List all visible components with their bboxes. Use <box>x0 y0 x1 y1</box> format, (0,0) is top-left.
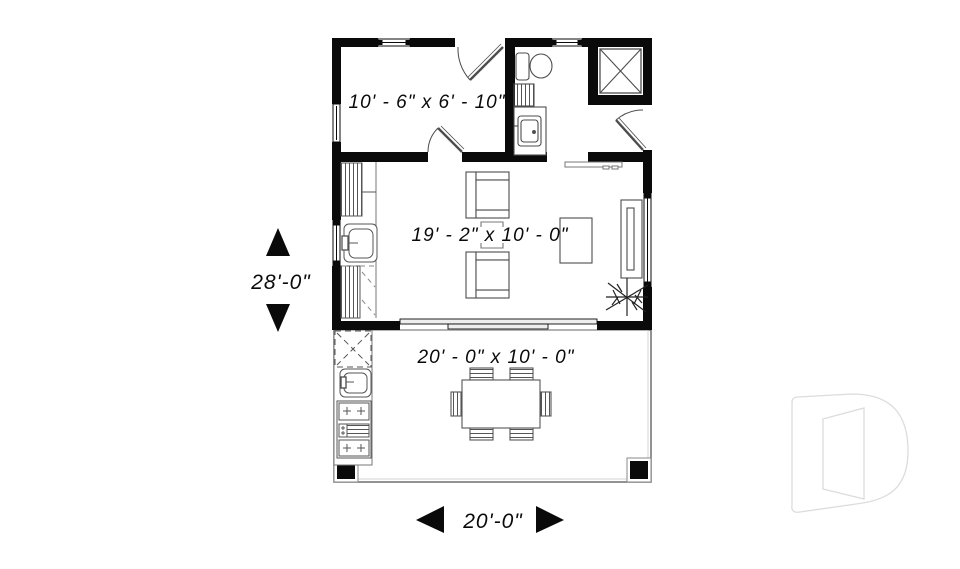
window-top-bath <box>552 39 582 46</box>
living-dimension-label: 19' - 2" x 10' - 0" <box>412 225 569 246</box>
dining-chair <box>541 392 551 416</box>
dining-chair <box>470 368 493 380</box>
shower-icon <box>600 49 641 93</box>
window-top-bedroom <box>378 39 410 46</box>
grill-icon <box>337 401 371 458</box>
floor-plan-canvas: 10' - 6" x 6' - 10" 19' - 2" x 10' - 0" … <box>0 0 960 569</box>
bath-linen <box>514 84 534 106</box>
terrace-dimension-label: 20' - 0" x 10' - 0" <box>417 347 575 368</box>
drummond-d-logo-watermark-icon <box>792 394 908 512</box>
lower-cabinet <box>341 266 360 318</box>
window-left-kitchen <box>333 220 340 266</box>
bedroom-dimension-label: 10' - 6" x 6' - 10" <box>349 92 506 113</box>
sliding-door <box>400 319 597 329</box>
window-left-bedroom <box>333 104 340 142</box>
bedroom-closet-door <box>428 126 464 152</box>
vanity-sink-icon <box>514 107 546 155</box>
bedroom-entry-door <box>458 44 503 80</box>
outdoor-sink-icon <box>340 369 371 397</box>
plant-icon <box>606 278 648 316</box>
armchair-1 <box>466 172 509 218</box>
armchair-2 <box>466 252 509 298</box>
kitchen-sink-icon <box>342 224 377 262</box>
arrow-right-icon <box>536 506 564 533</box>
tv-console <box>621 200 642 278</box>
outdoor-kitchen <box>334 330 372 465</box>
dining-chair <box>510 368 533 380</box>
dining-chair <box>470 428 493 440</box>
arrow-left-icon <box>416 506 444 533</box>
arrow-down-icon <box>266 304 290 332</box>
main-entry-door <box>616 110 646 150</box>
entry-shelf <box>565 162 622 169</box>
dining-table <box>462 380 540 428</box>
dining-table-set <box>451 368 551 440</box>
window-right-living <box>644 193 651 287</box>
overall-depth-label: 28'-0" <box>250 271 311 294</box>
dining-chair <box>510 428 533 440</box>
dishwasher <box>341 163 362 216</box>
toilet-icon <box>516 53 552 80</box>
terrace-post-right <box>627 458 651 482</box>
dining-chair <box>451 392 461 416</box>
overall-width-label: 20'-0" <box>462 510 523 533</box>
arrow-up-icon <box>266 228 290 256</box>
floor-plan-drawing: 10' - 6" x 6' - 10" 19' - 2" x 10' - 0" … <box>0 0 960 569</box>
kitchen-counter <box>341 162 377 318</box>
